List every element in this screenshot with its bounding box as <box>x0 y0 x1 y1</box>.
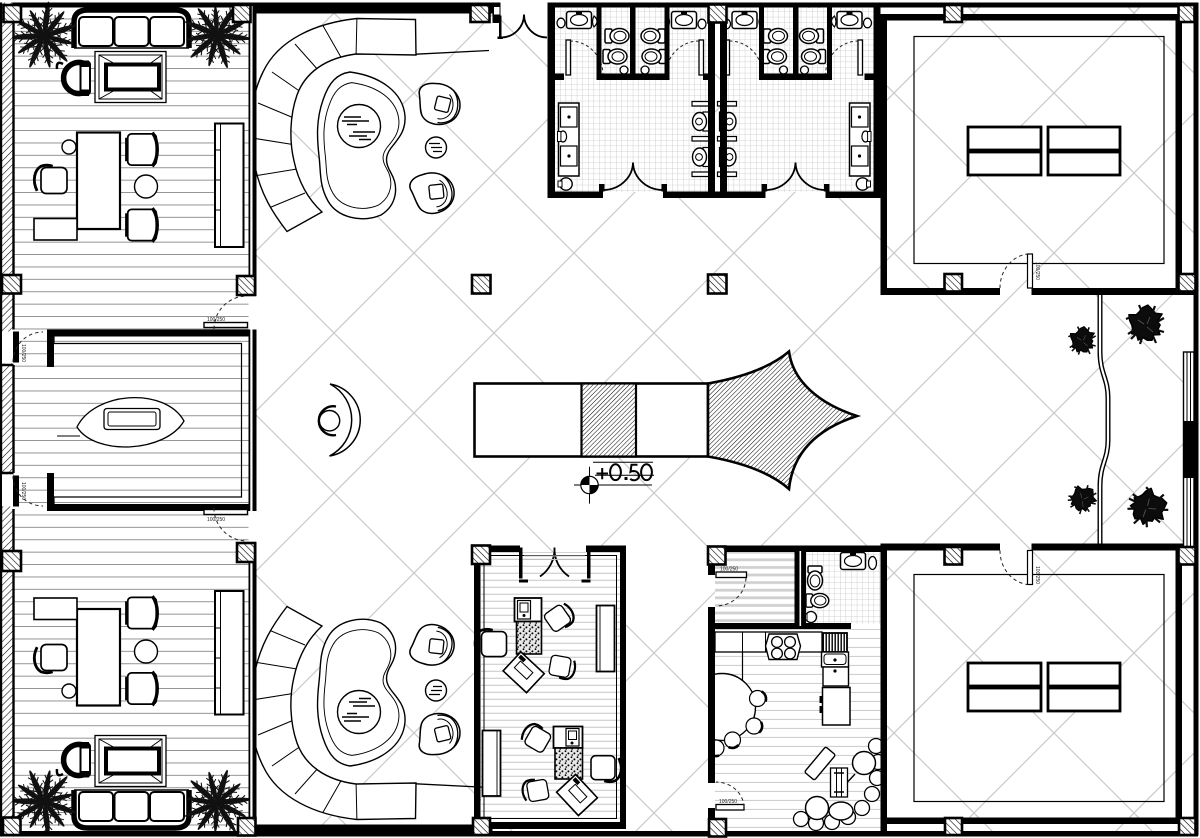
svg-text:100/250: 100/250 <box>207 317 225 323</box>
svg-text:100/250: 100/250 <box>1034 262 1040 280</box>
svg-text:100/250: 100/250 <box>20 344 26 362</box>
svg-text:100/250: 100/250 <box>1034 566 1040 584</box>
svg-text:100/250: 100/250 <box>719 799 737 805</box>
svg-text:100/250: 100/250 <box>720 567 738 573</box>
svg-text:100/250: 100/250 <box>20 482 26 500</box>
svg-text:100/250: 100/250 <box>207 517 225 523</box>
